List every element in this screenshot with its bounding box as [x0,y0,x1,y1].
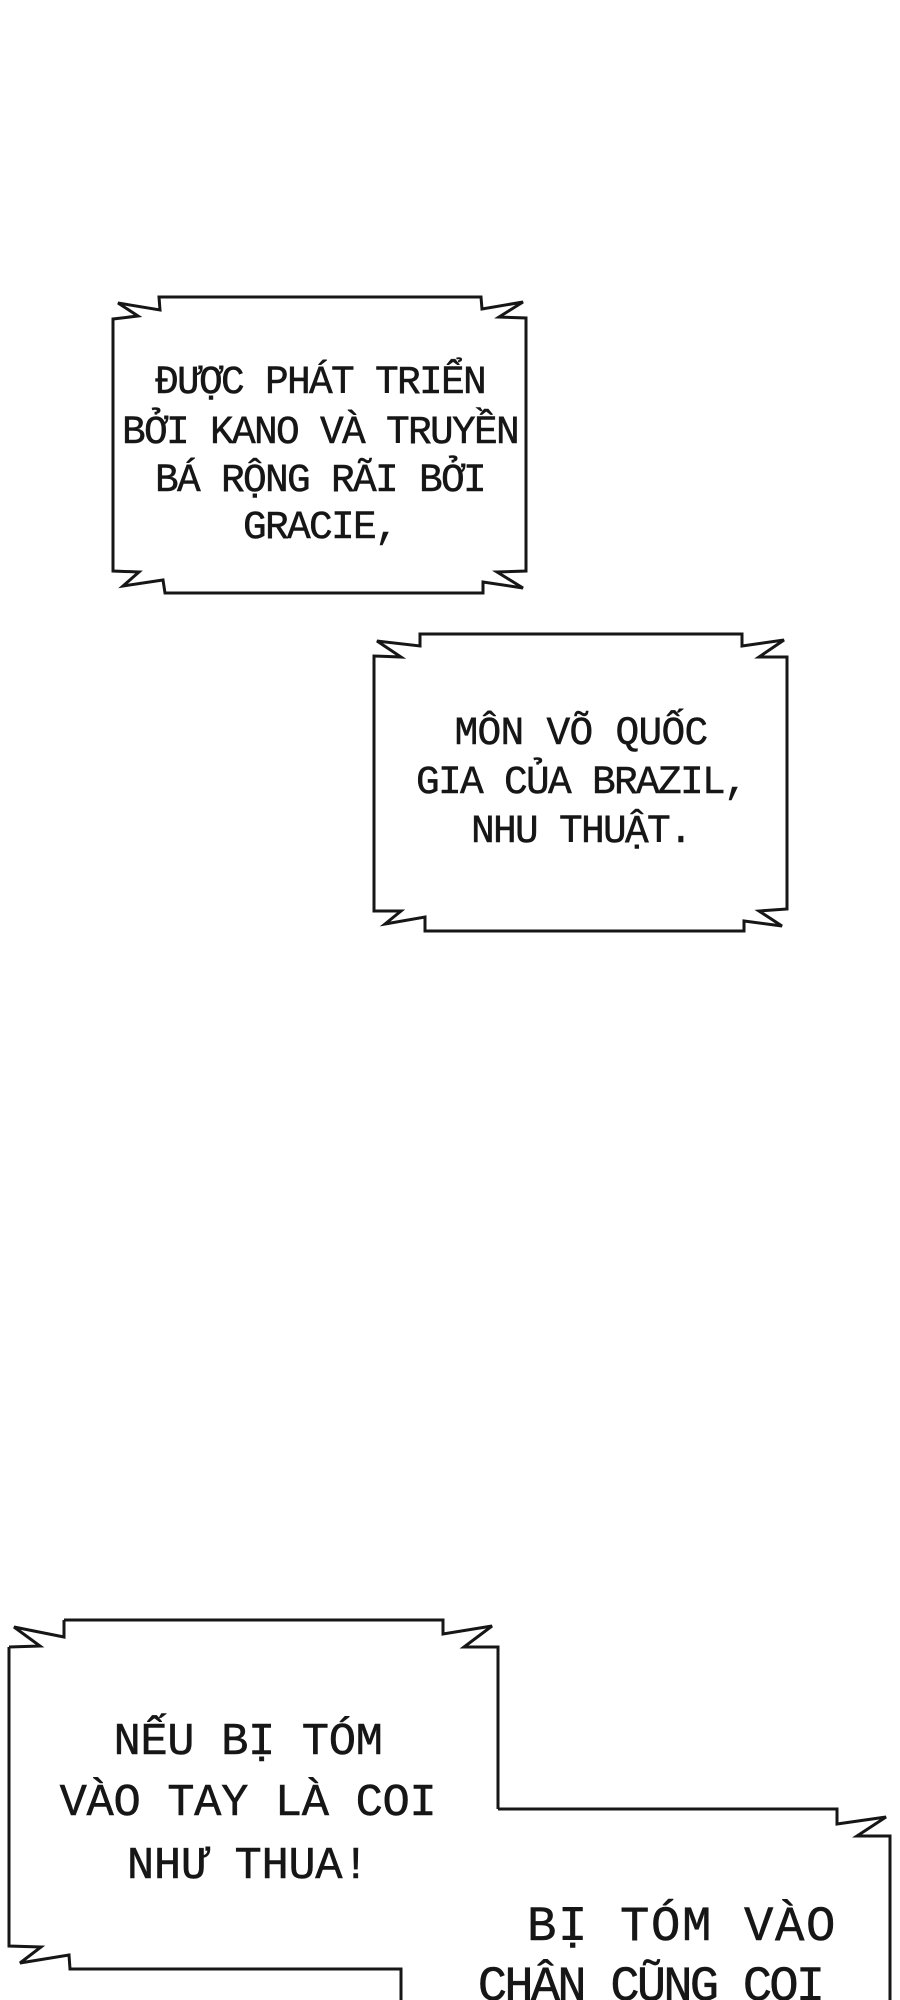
svg-text:MÔN VÕ QUỐC: MÔN VÕ QUỐC [454,709,707,756]
svg-text:GRACIE,: GRACIE, [243,505,397,550]
svg-text:GIA CỦA BRAZIL,: GIA CỦA BRAZIL, [416,758,746,805]
svg-text:CHÂN CŨNG COI: CHÂN CŨNG COI [478,1959,823,2000]
svg-text:NHƯ THUA!: NHƯ THUA! [127,1840,369,1892]
svg-text:NẾU BỊ TÓM: NẾU BỊ TÓM [113,1712,382,1768]
svg-text:BỞI KANO VÀ TRUYỀN: BỞI KANO VÀ TRUYỀN [122,408,518,455]
svg-text:ĐƯỢC PHÁT TRIỂN: ĐƯỢC PHÁT TRIỂN [155,357,485,405]
svg-text:VÀO TAY LÀ COI: VÀO TAY LÀ COI [60,1776,437,1829]
svg-text:BÁ RỘNG RÃI BỞI: BÁ RỘNG RÃI BỞI [155,456,485,503]
svg-text:BỊ TÓM VÀO: BỊ TÓM VÀO [527,1899,837,1955]
svg-text:NHU THUẬT.: NHU THUẬT. [471,809,691,854]
